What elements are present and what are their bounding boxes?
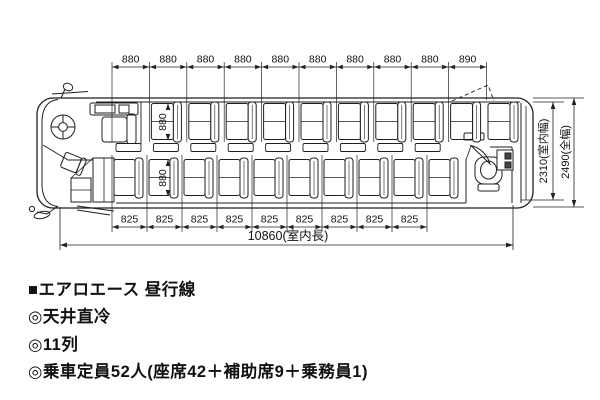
dim-arrow xyxy=(393,225,399,230)
caption-item-rows: ◎11列 xyxy=(28,331,78,355)
seat-width-top-label: 880 xyxy=(157,113,169,131)
dim-label: 880 xyxy=(346,54,364,66)
dim-arrow xyxy=(225,65,231,70)
interior-length-dim: 10860(室内長) xyxy=(60,205,513,250)
dim-arrow xyxy=(551,102,556,109)
caption-item-cooling: ◎天井直冷 xyxy=(28,303,111,327)
caption-item-capacity: ◎乗車定員52人(座席42＋補助席9＋乗務員1) xyxy=(28,358,368,382)
dim-arrow xyxy=(337,65,343,70)
dim-label: 825 xyxy=(401,214,419,226)
dim-arrow xyxy=(113,225,119,230)
dim-arrow xyxy=(141,225,147,230)
driver-seat xyxy=(102,117,127,142)
dim-label: 825 xyxy=(226,214,244,226)
dim-arrow xyxy=(60,243,67,248)
dim-arrow xyxy=(551,193,556,200)
mirror-top-blade xyxy=(52,92,88,95)
dim-arrow xyxy=(211,225,217,230)
wheel-hub xyxy=(59,123,68,132)
dim-arrow xyxy=(262,65,268,70)
dim-arrow xyxy=(358,225,364,230)
bottom-dim-chain: 825825825825825825825825825 xyxy=(112,214,427,230)
dim-arrow xyxy=(255,65,261,70)
aux-seat-folded xyxy=(153,144,178,152)
driver-seatback xyxy=(127,114,136,144)
generated-layer: 8808808808808808808808808808908258258258… xyxy=(112,54,518,233)
bus-layout-diagram: 8808808808808808808808808808908258258258… xyxy=(0,0,600,400)
dim-arrow xyxy=(480,65,486,70)
door-step-line-2 xyxy=(77,210,110,215)
driver-area xyxy=(43,102,141,202)
dim-arrow xyxy=(293,65,299,70)
model-title: ■エアロエース 昼行線 xyxy=(28,276,196,300)
seat-width-bottom-label: 880 xyxy=(157,169,169,187)
dim-label: 880 xyxy=(197,54,215,66)
dim-label: 825 xyxy=(331,214,349,226)
toilet-hinge-wall xyxy=(466,146,471,160)
dim-arrow xyxy=(405,65,411,70)
aux-seat-folded xyxy=(340,144,365,152)
interior-width-label: 2310(室内幅) xyxy=(536,119,550,184)
dim-label: 825 xyxy=(261,214,279,226)
dim-label: 890 xyxy=(459,54,477,66)
dim-label: 825 xyxy=(296,214,314,226)
dim-arrow xyxy=(218,225,224,230)
dim-label: 880 xyxy=(421,54,439,66)
toilet-bowl-icon xyxy=(481,161,497,179)
crew-seat xyxy=(60,151,87,176)
dim-arrow xyxy=(421,225,427,230)
toilet-base xyxy=(478,184,499,191)
dim-label: 880 xyxy=(309,54,327,66)
dim-arrow xyxy=(143,65,149,70)
toilet-compartment xyxy=(452,85,513,203)
dim-arrow xyxy=(351,225,357,230)
dim-arrow xyxy=(150,65,156,70)
aux-seat-folded xyxy=(303,144,328,152)
dim-label: 880 xyxy=(234,54,252,66)
aux-seats xyxy=(116,144,440,152)
dim-arrow xyxy=(449,65,455,70)
dim-arrow xyxy=(367,65,373,70)
dim-arrow xyxy=(183,225,189,230)
dim-arrow xyxy=(412,65,418,70)
dim-arrow xyxy=(442,65,448,70)
dim-label: 880 xyxy=(384,54,402,66)
dim-arrow xyxy=(572,98,577,105)
mirror-bottom-head xyxy=(29,206,34,211)
aux-seat-folded xyxy=(266,144,291,152)
diagram-svg: 8808808808808808808808808808908258258258… xyxy=(0,0,600,400)
dim-arrow xyxy=(187,65,193,70)
aux-seat-folded xyxy=(191,144,216,152)
dim-label: 880 xyxy=(122,54,140,66)
panel-box xyxy=(119,105,129,113)
dim-arrow xyxy=(506,243,513,248)
overall-width-label: 2490(全幅) xyxy=(558,125,572,179)
aux-seat-folded xyxy=(228,144,253,152)
washbasin-tap-2 xyxy=(505,162,511,168)
dim-arrow xyxy=(176,225,182,230)
aux-seat-folded xyxy=(415,144,440,152)
top-seat-row xyxy=(151,102,518,142)
dim-label: 880 xyxy=(159,54,177,66)
dim-label: 825 xyxy=(121,214,139,226)
dim-label: 825 xyxy=(366,214,384,226)
dim-arrow xyxy=(330,65,336,70)
crew-seat-cushion xyxy=(60,152,82,173)
interior-length-label: 10860(室内長) xyxy=(248,228,329,243)
dim-arrow xyxy=(386,225,392,230)
step-diagonal xyxy=(71,158,93,178)
width-dims: 2310(室内幅) 2490(全幅) xyxy=(521,98,584,207)
washbasin-tap-1 xyxy=(505,153,511,159)
mirror-bottom-icon xyxy=(33,210,50,220)
dim-label: 880 xyxy=(272,54,290,66)
dim-arrow xyxy=(180,65,186,70)
dim-arrow xyxy=(166,104,171,111)
dim-label: 825 xyxy=(191,214,209,226)
dim-arrow xyxy=(300,65,306,70)
dim-label: 825 xyxy=(156,214,174,226)
aux-seat-folded xyxy=(116,144,141,152)
dim-arrow xyxy=(374,65,380,70)
aux-seat-folded xyxy=(378,144,403,152)
dim-arrow xyxy=(113,65,119,70)
dim-arrow xyxy=(572,200,577,207)
entry-platform xyxy=(93,158,114,202)
dim-arrow xyxy=(218,65,224,70)
dim-arrow xyxy=(148,225,154,230)
